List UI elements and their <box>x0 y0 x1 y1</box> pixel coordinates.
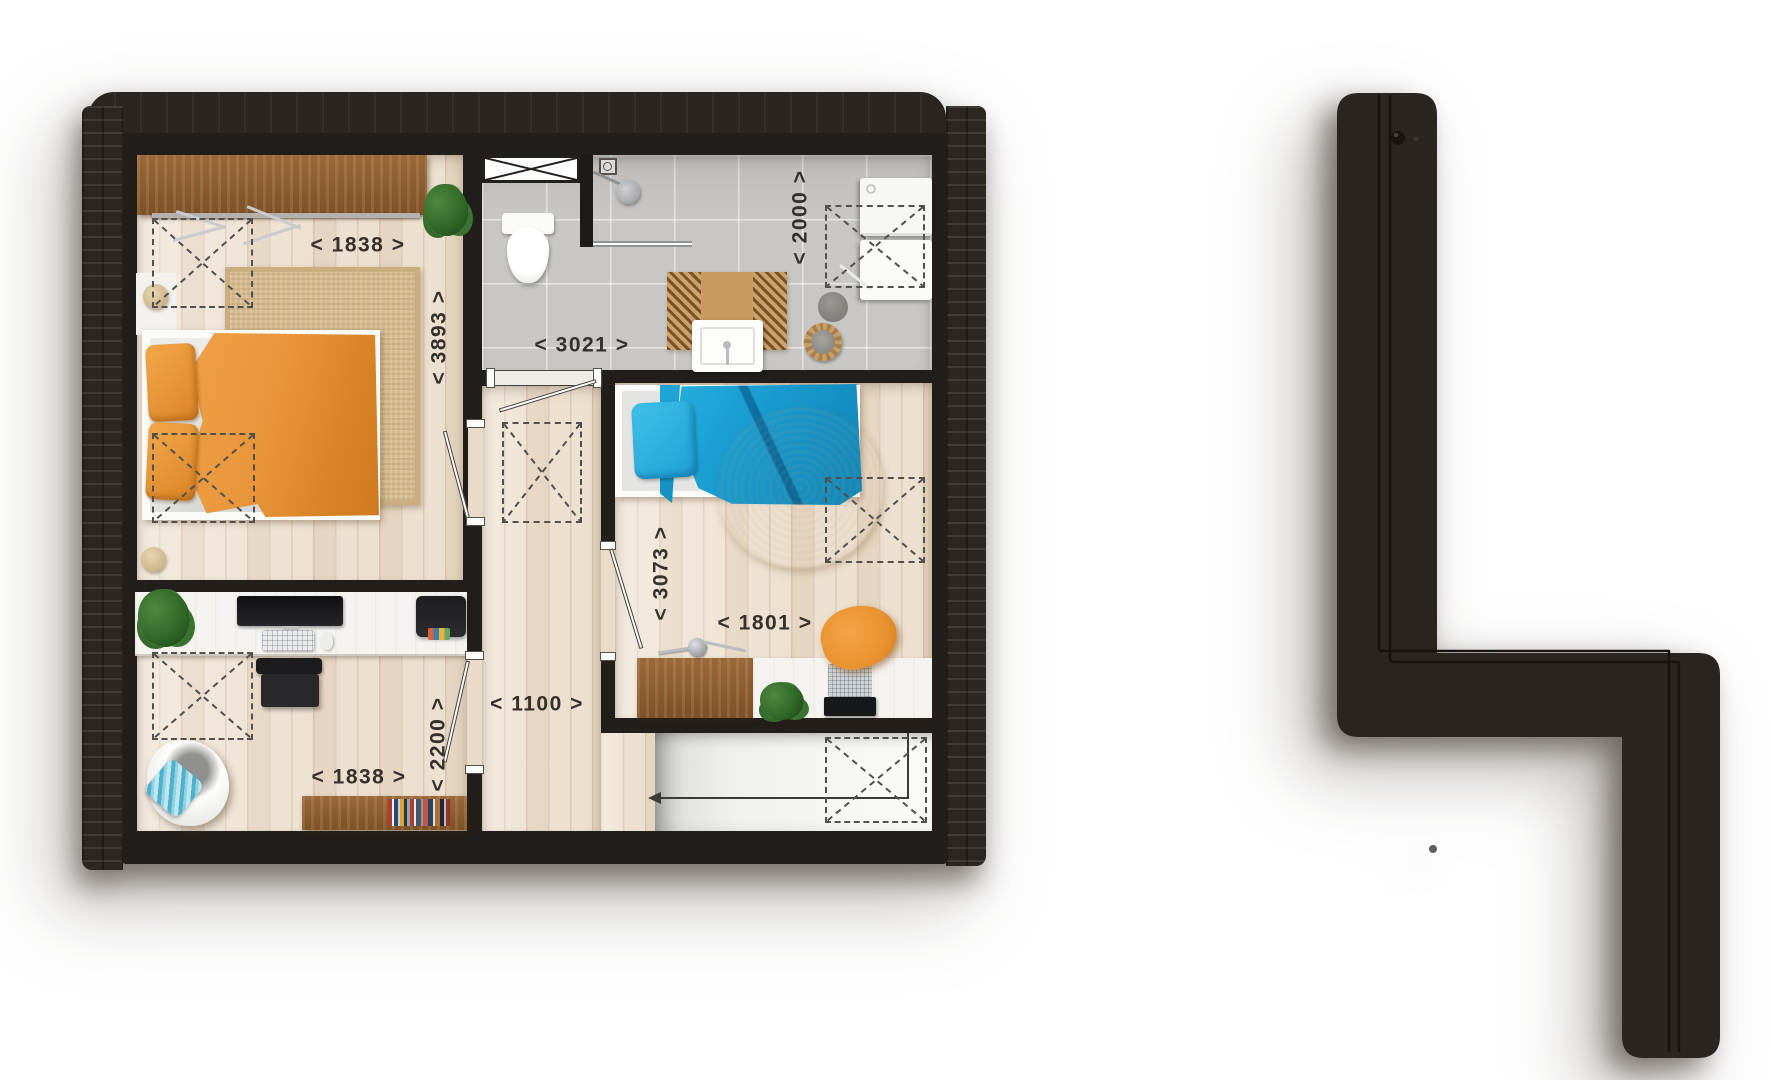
dimension-label-bedroom1-width: < 1838 > <box>311 235 406 256</box>
washer-dial-icon <box>866 184 876 194</box>
bedroom3-door-opening <box>467 660 482 766</box>
roof-dot-detail <box>1429 845 1437 853</box>
detached-roof-section <box>1310 70 1750 1080</box>
pillow-icon <box>145 343 199 423</box>
dimension-label-bathroom-width: < 3021 > <box>535 335 630 356</box>
roof-vent-icon <box>1413 137 1419 141</box>
plant-icon <box>424 184 468 236</box>
door-jamb <box>465 651 484 660</box>
desk-lamp-icon <box>688 638 706 656</box>
floor-plan-stage: < 1838 > < 3893 > < 3021 > < 2000 > < 30… <box>0 0 1771 1080</box>
shower-partition-wall <box>580 155 593 247</box>
desk-chair-seat <box>261 674 319 707</box>
roof-window-marker <box>152 433 255 523</box>
books-icon <box>388 799 450 826</box>
dresser-desk <box>637 658 753 718</box>
dimension-label-bedroom1-depth: < 3893 > <box>429 290 450 385</box>
dimension-label-bedroom2-depth: < 3073 > <box>651 526 672 621</box>
shower-head-icon <box>616 180 640 204</box>
stair-arrow-head-icon <box>648 792 661 804</box>
shower-glass-screen <box>593 241 692 247</box>
plant-icon <box>760 682 804 720</box>
roof-window-marker <box>825 737 927 823</box>
wall-window-marker <box>482 155 580 183</box>
roof-eave-top <box>88 92 946 138</box>
bedroom2-door-opening <box>601 550 615 652</box>
dimension-label-bedroom3-depth: < 2200 > <box>428 697 449 792</box>
towel-icon <box>818 292 848 322</box>
roof-tiles-left <box>82 106 123 870</box>
door-jamb <box>593 368 602 388</box>
monitor-icon <box>237 596 343 626</box>
roof-window-marker <box>152 218 253 308</box>
faucet-spout-icon <box>726 349 729 365</box>
mouse-icon <box>321 633 333 650</box>
faucet-icon <box>723 341 731 349</box>
laptop-screen-icon <box>824 697 876 716</box>
roof-section-slab <box>1337 93 1720 1058</box>
bedroom1-door-opening <box>468 428 483 518</box>
plant-icon <box>138 589 190 647</box>
pillow-icon <box>631 400 697 479</box>
door-jamb <box>466 419 485 428</box>
roof-window-marker <box>502 422 582 523</box>
dimension-label-bathroom-depth: < 2000 > <box>790 170 811 265</box>
door-jamb <box>486 368 495 388</box>
dimension-label-bedroom2-width: < 1801 > <box>718 613 813 634</box>
roof-window-marker <box>825 477 925 563</box>
hallway-floor-extension <box>601 733 655 831</box>
roof-vent-icon <box>1391 131 1405 145</box>
pouf-icon <box>141 547 166 572</box>
desk-chair-back <box>256 658 322 674</box>
wardrobe <box>137 155 427 215</box>
roof-window-marker <box>825 205 925 288</box>
dimension-label-hallway-width: < 1100 > <box>490 694 584 715</box>
door-jamb <box>600 652 616 661</box>
roof-window-marker <box>152 652 253 740</box>
dimension-label-bedroom3-width: < 1838 > <box>312 767 407 788</box>
towel-in-basket <box>811 330 835 354</box>
door-jamb <box>466 517 485 526</box>
drain-hole-icon <box>603 162 612 171</box>
roof-vent-highlight <box>1394 133 1398 137</box>
keyboard-icon <box>262 630 314 651</box>
printed-paper-icon <box>428 628 450 640</box>
door-jamb <box>465 765 484 774</box>
roof-tiles-right <box>946 106 986 866</box>
